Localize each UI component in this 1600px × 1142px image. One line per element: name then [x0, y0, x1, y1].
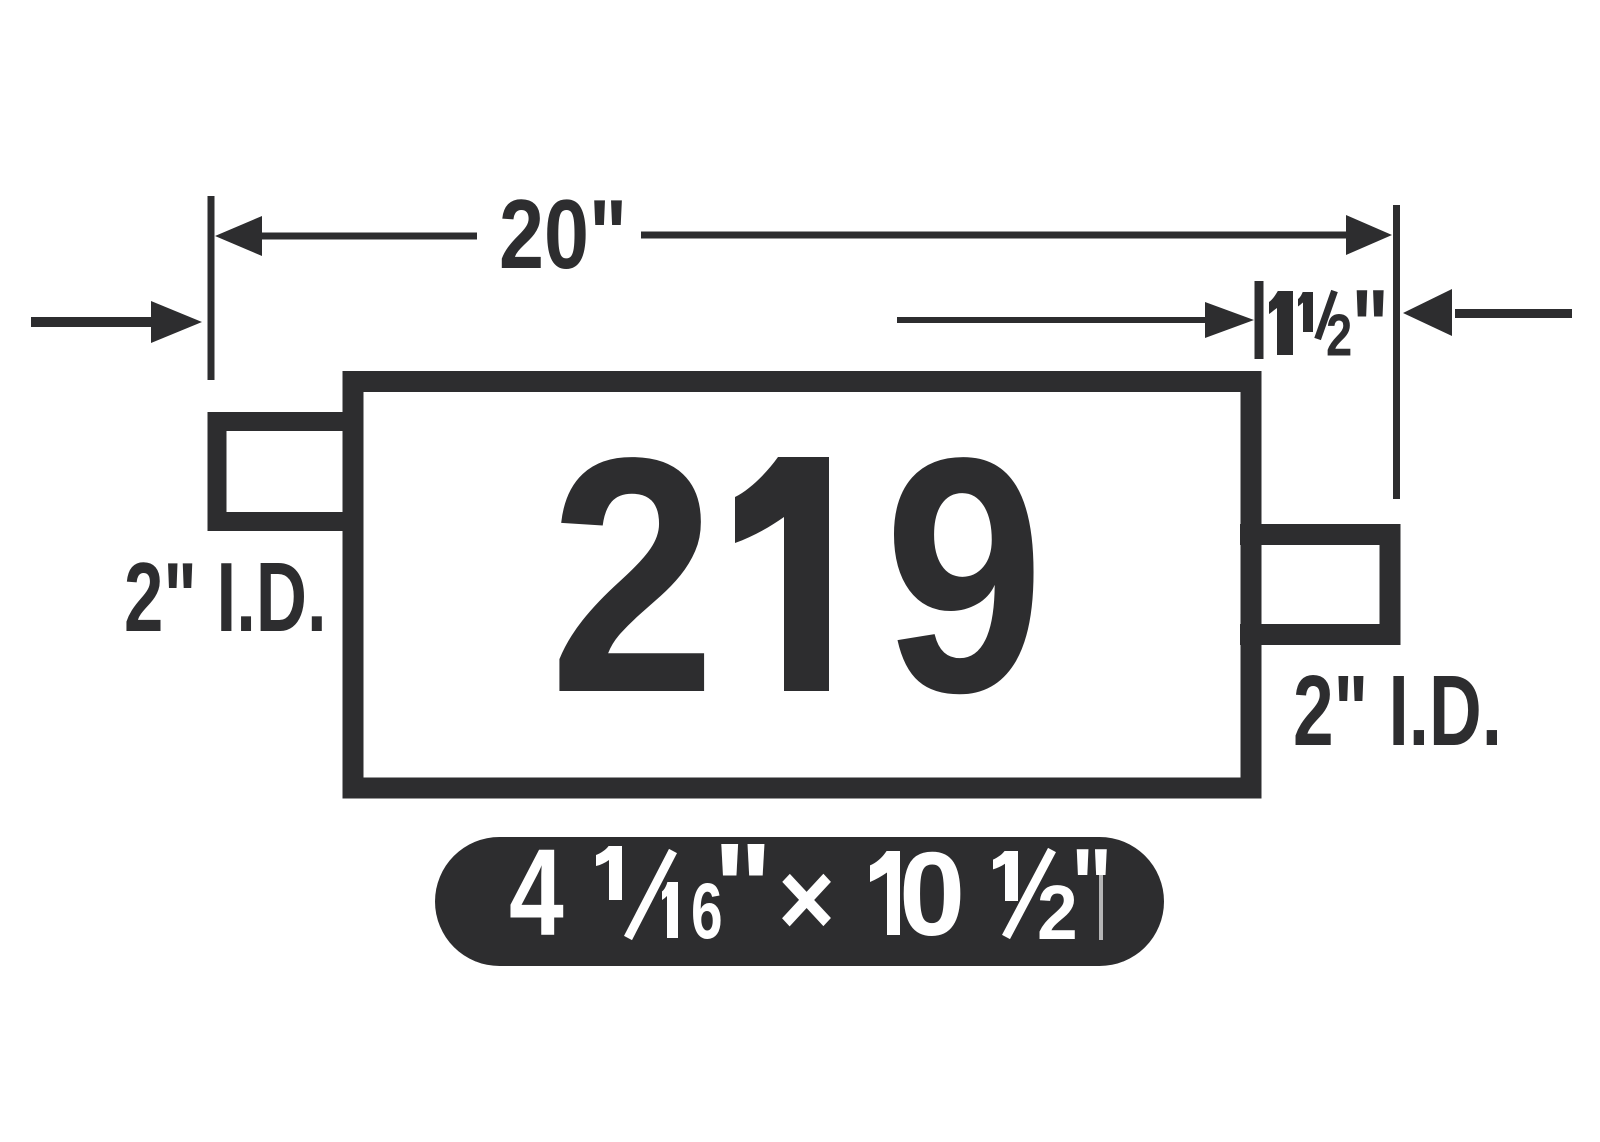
svg-text:2" I.D.: 2" I.D.	[124, 544, 327, 653]
svg-text:20": 20"	[499, 181, 627, 290]
svg-text:×: ×	[778, 841, 835, 958]
svg-text:0: 0	[899, 828, 965, 961]
svg-text:": "	[1352, 268, 1389, 386]
svg-text:9: 9	[884, 389, 1044, 763]
svg-text:2: 2	[549, 389, 716, 763]
svg-text:2" I.D.: 2" I.D.	[1293, 655, 1502, 767]
svg-text:2: 2	[1326, 304, 1352, 369]
svg-text:4: 4	[509, 823, 564, 961]
svg-text:": "	[1071, 827, 1113, 942]
svg-text:": "	[713, 817, 773, 958]
